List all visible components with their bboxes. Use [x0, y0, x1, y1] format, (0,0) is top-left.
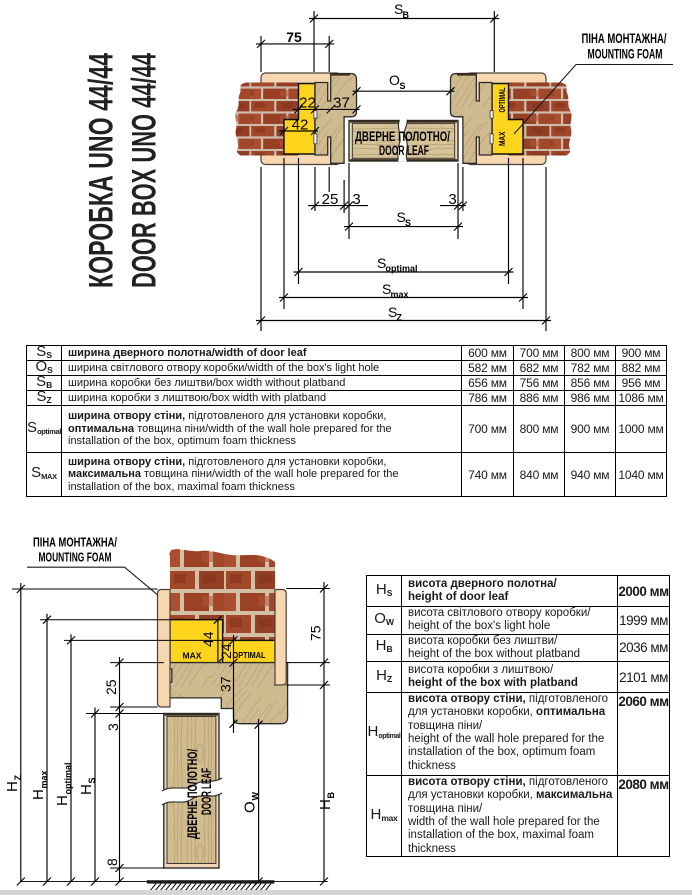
svg-text:max: max [39, 770, 49, 788]
svg-text:optimal: optimal [63, 762, 73, 794]
svg-text:H: H [317, 799, 334, 810]
svg-text:КОРОБКА UNO 44/44: КОРОБКА UNO 44/44 [83, 53, 121, 288]
svg-text:37: 37 [218, 676, 234, 692]
svg-text:max: max [391, 290, 409, 300]
svg-text:S: S [87, 777, 97, 783]
svg-text:B: B [403, 10, 410, 20]
svg-text:3: 3 [448, 191, 456, 208]
svg-text:44: 44 [200, 631, 216, 647]
svg-text:S: S [400, 81, 406, 91]
svg-text:DOOR BOX UNO 44/44: DOOR BOX UNO 44/44 [126, 53, 164, 288]
svg-text:ДВЕРНЕ ПОЛОТНО/: ДВЕРНЕ ПОЛОТНО/ [185, 749, 200, 839]
svg-text:25: 25 [103, 679, 119, 695]
svg-text:H: H [4, 781, 21, 792]
svg-text:24: 24 [218, 643, 234, 659]
svg-text:75: 75 [286, 29, 302, 45]
svg-text:O: O [242, 801, 259, 813]
svg-text:22: 22 [299, 95, 316, 112]
svg-text:H: H [30, 789, 47, 800]
svg-text:O: O [389, 72, 400, 88]
svg-text:75: 75 [308, 625, 324, 641]
svg-text:MOUNTING FOAM: MOUNTING FOAM [588, 47, 663, 62]
svg-text:MOUNTING FOAM: MOUNTING FOAM [39, 550, 112, 565]
svg-text:3: 3 [352, 191, 360, 208]
svg-text:Z: Z [13, 775, 23, 781]
svg-text:ПІНА МОНТАЖНА/: ПІНА МОНТАЖНА/ [582, 31, 667, 46]
svg-text:DOOR LEAF: DOOR LEAF [379, 143, 429, 158]
svg-text:3: 3 [105, 723, 121, 731]
svg-text:ПІНА МОНТАЖНА/: ПІНА МОНТАЖНА/ [33, 535, 117, 550]
svg-text:MAX: MAX [498, 131, 507, 146]
svg-text:8: 8 [104, 858, 120, 866]
svg-text:B: B [326, 792, 336, 799]
svg-text:H: H [54, 795, 71, 806]
svg-text:OPTIMAL: OPTIMAL [498, 87, 507, 112]
svg-text:25: 25 [322, 191, 339, 208]
svg-text:H: H [78, 784, 95, 795]
svg-text:S: S [405, 218, 411, 228]
svg-text:DOOR LEAF: DOOR LEAF [199, 768, 214, 815]
svg-text:37: 37 [333, 95, 350, 112]
svg-text:42: 42 [292, 117, 309, 134]
svg-text:MAX: MAX [183, 651, 202, 661]
svg-text:W: W [251, 792, 261, 801]
svg-text:optimal: optimal [386, 264, 418, 274]
svg-text:Z: Z [397, 313, 403, 323]
svg-text:ДВЕРНЕ ПОЛОТНО/: ДВЕРНЕ ПОЛОТНО/ [355, 129, 450, 144]
